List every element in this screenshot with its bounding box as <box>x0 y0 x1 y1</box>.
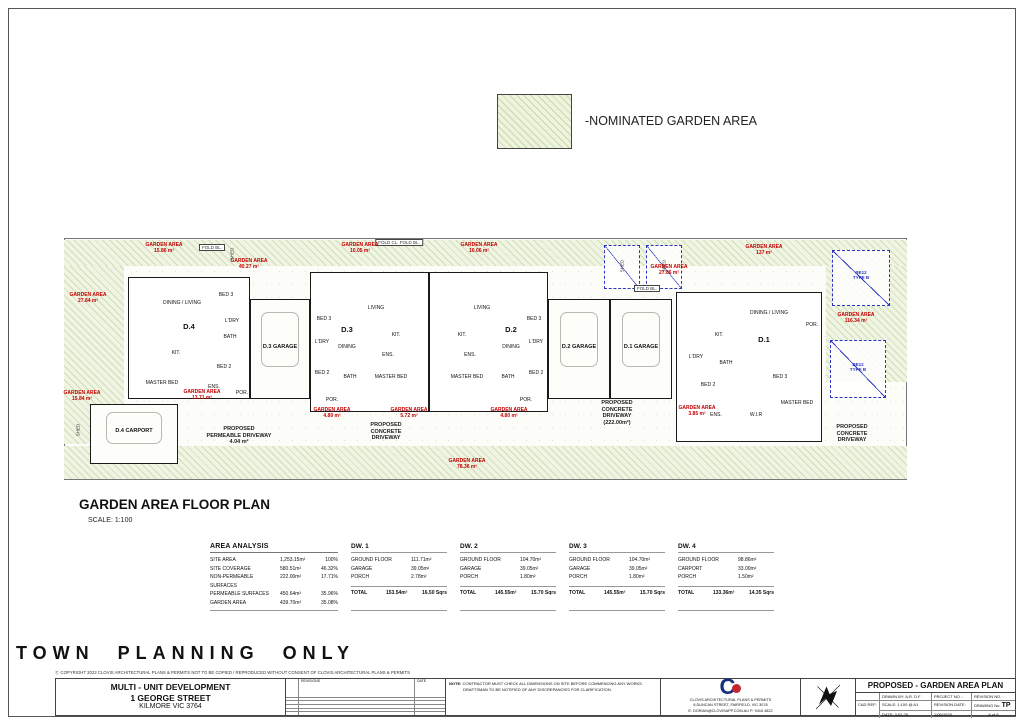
plan-label-drv: PROPOSED PERMEABLE DRIVEWAY 4.04 m² <box>207 426 272 446</box>
dwelling-row: CARPORT33.00m² <box>678 565 774 574</box>
plan-label-gar: D.3 GARAGE <box>263 344 297 351</box>
field-drawing-no: DRAWING No: TP <box>972 701 1015 711</box>
plan-label-room: MASTER BED <box>781 400 814 406</box>
plan-label-room: MASTER BED <box>451 374 484 380</box>
dwelling-column: DW. 4GROUND FLOOR98.86m²CARPORT33.00m²PO… <box>678 543 774 611</box>
dwelling-row: PORCH2.78m² <box>351 573 447 582</box>
revision-cell <box>286 701 299 704</box>
plan-label-room: BED 3 <box>317 316 331 322</box>
project-line-2: 1 GEORGE STREET <box>56 693 285 704</box>
revision-cell <box>286 712 299 715</box>
plan-label-red: GARDEN AREA 27.84 m² <box>69 292 106 304</box>
plan-label-red: GARDEN AREA 78.36 m² <box>448 458 485 470</box>
revision-cell <box>415 698 445 701</box>
revisions-empty-rows <box>286 698 445 716</box>
dwelling-row: GARAGE39.05m² <box>569 565 665 574</box>
revision-cell <box>286 709 299 712</box>
revision-cell <box>286 698 299 701</box>
north-arrow-block <box>801 679 856 715</box>
revision-cell <box>415 709 445 712</box>
plan-label-red: GARDEN AREA 4.80 m² <box>490 407 527 419</box>
revision-cell <box>415 712 445 715</box>
dwelling-total-row: TOTAL145.55m²15.70 Sqrs <box>569 586 665 596</box>
drawing-title-block: PROPOSED - GARDEN AREA PLAN DRAWN BY: A.… <box>856 679 1015 715</box>
plan-label-room: KIT. <box>715 332 724 338</box>
plan-label-room: ENS. <box>382 352 394 358</box>
plan-label-room: L'DRY <box>315 339 329 345</box>
plan-label-room: ENS. <box>464 352 476 358</box>
plan-label-uid: D.1 <box>758 335 770 344</box>
plan-label-fold: FOLD CL. FOLD BL. <box>375 239 423 246</box>
plan-label-room: L'DRY <box>689 354 703 360</box>
title-bar: MULTI - UNIT DEVELOPMENT 1 GEORGE STREET… <box>55 678 1016 716</box>
revision-row <box>286 712 445 715</box>
plan-label-red: GARDEN AREA 10.05 m² <box>341 242 378 254</box>
revision-cell <box>299 709 415 712</box>
plan-label-room: MASTER BED <box>146 380 179 386</box>
plan-label-room: LIVING <box>368 305 384 311</box>
note-label: NOTE: <box>449 681 461 686</box>
revision-cell <box>415 701 445 704</box>
plan-label-room: BED 2 <box>217 364 231 370</box>
plan-label-gar: D.4 CARPORT <box>115 428 152 435</box>
dwelling-row: PORCH1.50m² <box>678 573 774 582</box>
garden-area-legend-label: -NOMINATED GARDEN AREA <box>585 114 757 128</box>
dwelling-row: GROUND FLOOR98.86m² <box>678 556 774 565</box>
plan-label-uid: D.3 <box>341 325 353 334</box>
plan-label-room: W.I.R <box>750 412 762 418</box>
plan-label-uid: D.2 <box>505 325 517 334</box>
project-line-1: MULTI - UNIT DEVELOPMENT <box>56 682 285 693</box>
revision-cell <box>299 705 415 708</box>
plan-label-room: MASTER BED <box>375 374 408 380</box>
plan-label-room: ENS. <box>710 412 722 418</box>
plan-label-red: GARDEN AREA 27.86 m² <box>650 264 687 276</box>
plan-label-room: BATH <box>344 374 357 380</box>
field-date: DATE: 3.02.25 <box>880 711 932 718</box>
plan-label-fold: FOLD BL. <box>199 244 225 251</box>
note-block: NOTE: CONTRACTOR MUST CHECK ALL DIMENSIO… <box>446 679 661 715</box>
plan-heading: GARDEN AREA FLOOR PLAN <box>79 497 270 512</box>
dwelling-header: DW. 3 <box>569 543 665 553</box>
dwelling-header: DW. 1 <box>351 543 447 553</box>
field-revision-date-value: 1/06/2025 <box>932 711 972 718</box>
field-drawn-by: DRAWN BY: A.R. D.F <box>880 693 932 701</box>
plan-label-room: POR. <box>520 397 532 403</box>
company-contact: E: DORIAN@CLOVISAPP.COM.AU P: 9416 4822 <box>661 709 800 714</box>
drawing-sheet: -NOMINATED GARDEN AREA FOLD BL.FOLD CL. … <box>0 0 1024 723</box>
plan-label-vert: SHED <box>75 424 80 437</box>
dwelling-column: DW. 1GROUND FLOOR111.71m²GARAGE39.05m²PO… <box>351 543 447 611</box>
project-block: MULTI - UNIT DEVELOPMENT 1 GEORGE STREET… <box>56 679 286 715</box>
plan-label-red: GARDEN AREA 5.72 m² <box>390 407 427 419</box>
plan-label-room: KIT. <box>392 332 401 338</box>
plan-label-room: DINING <box>338 344 356 350</box>
plan-label-room: BED 3 <box>527 316 541 322</box>
note-line-1: CONTRACTOR MUST CHECK ALL DIMENSIONS ON … <box>463 681 643 686</box>
revision-cell <box>415 705 445 708</box>
field-sheet-number: 6 of 9 <box>972 711 1015 718</box>
plan-label-room: L'DRY <box>225 318 239 324</box>
plan-label-room: DINING / LIVING <box>163 300 201 306</box>
plan-label-gar: D.1 GARAGE <box>624 344 658 351</box>
clovis-logo-icon: C <box>716 680 746 698</box>
plan-label-blue: BE12 TYPE B <box>850 362 866 373</box>
revisions-header-spacer <box>286 679 299 697</box>
plan-label-room: KIT. <box>458 332 467 338</box>
plan-label-room: DINING <box>502 344 520 350</box>
plan-label-red: GARDEN AREA 13.71 m² <box>183 389 220 401</box>
dwelling-row: GROUND FLOOR104.70m² <box>569 556 665 565</box>
plan-label-red: GARDEN AREA 137 m² <box>745 244 782 256</box>
revisions-header: REVISIONS <box>299 679 415 697</box>
north-arrow-icon <box>813 682 843 712</box>
plan-label-room: LIVING <box>474 305 490 311</box>
analysis-row: GARDEN AREA439.70m²35.08% <box>210 599 338 608</box>
plan-label-red: GARDEN AREA 4.80 m² <box>313 407 350 419</box>
field-revision-no: REVISION NO. : <box>972 693 1015 701</box>
analysis-row: NON-PERMEABLE SURFACES222.00m²17.71% <box>210 573 338 590</box>
dwelling-row: PORCH1.80m² <box>569 573 665 582</box>
plan-label-room: ENS. <box>208 384 220 390</box>
plan-label-red: GARDEN AREA 116.34 m² <box>837 312 874 324</box>
plan-label-room: KIT. <box>172 350 181 356</box>
plan-label-room: BATH <box>502 374 515 380</box>
field-project-no: PROJECT NO. : <box>932 693 972 701</box>
plan-label-red: GARDEN AREA 40.27 m² <box>230 258 267 270</box>
revision-cell <box>286 705 299 708</box>
plan-label-room: POR. <box>806 322 818 328</box>
dwelling-header: DW. 2 <box>460 543 556 553</box>
plan-label-vert: SHED <box>661 260 666 273</box>
revision-cell <box>299 712 415 715</box>
analysis-row: PERMEABLE SURFACES450.64m²35.96% <box>210 590 338 599</box>
field-revision-date-label: REVISION DATE: <box>932 701 972 711</box>
company-block: C CLOVIS ARCHITECTURAL PLANS & PERMITS 8… <box>661 679 801 715</box>
plan-label-room: BED 3 <box>773 374 787 380</box>
analysis-row: SITE COVERAGE580.51m²46.32% <box>210 565 338 574</box>
area-analysis-title: AREA ANALYSIS <box>210 543 338 553</box>
plan-label-vert: SHED <box>229 248 234 261</box>
revision-cell <box>299 698 415 701</box>
drawing-title: PROPOSED - GARDEN AREA PLAN <box>856 679 1015 693</box>
plan-label-drv: PROPOSED CONCRETE DRIVEWAY <box>370 422 401 442</box>
plan-label-red: GARDEN AREA 15.86 m² <box>145 242 182 254</box>
dwelling-column: DW. 2GROUND FLOOR104.70m²GARAGE39.05m²PO… <box>460 543 556 611</box>
garden-area-legend-swatch <box>497 94 572 149</box>
plan-label-uid: D.4 <box>183 322 195 331</box>
drawing-fields-grid: DRAWN BY: A.R. D.F PROJECT NO. : REVISIO… <box>856 693 1015 718</box>
revisions-header-row: REVISIONS DATE <box>286 679 445 698</box>
plan-label-drv: PROPOSED CONCRETE DRIVEWAY (222.00m²) <box>601 400 632 426</box>
area-analysis-table: AREA ANALYSIS SITE AREA1,253.15m²100%SIT… <box>210 543 776 611</box>
dwelling-row: GARAGE39.05m² <box>351 565 447 574</box>
field-cad-ref: CAD REF: <box>856 701 880 718</box>
analysis-row: SITE AREA1,253.15m²100% <box>210 556 338 565</box>
revisions-date-header: DATE <box>415 679 445 697</box>
plan-label-red: GARDEN AREA 10.06 m² <box>460 242 497 254</box>
area-analysis-rows: SITE AREA1,253.15m²100%SITE COVERAGE580.… <box>210 556 338 607</box>
copyright-line: Ⓒ COPYRIGHT 2022 CLOVIS ARCHITECTURAL PL… <box>55 670 410 676</box>
plan-label-room: POR. <box>326 397 338 403</box>
plan-label-room: BATH <box>720 360 733 366</box>
drawing-no-label: DRAWING No: <box>974 703 1001 708</box>
plan-label-gar: D.2 GARAGE <box>562 344 596 351</box>
field-blank <box>856 693 880 701</box>
dwelling-total-row: TOTAL153.54m²16.50 Sqrs <box>351 586 447 596</box>
revision-cell <box>299 701 415 704</box>
clovis-logo-dot <box>732 684 741 693</box>
note-line-2: DRAFTSMAN TO BE NOTIFIED OF ANY DISCREPA… <box>463 687 612 692</box>
dwelling-row: GARAGE39.05m² <box>460 565 556 574</box>
dwelling-total-row: TOTAL145.55m²15.70 Sqrs <box>460 586 556 596</box>
revisions-table: REVISIONS DATE <box>286 679 446 715</box>
field-scale: SCALE: 1:100 @ A1 <box>880 701 932 711</box>
drawing-no-value: TP <box>1002 702 1011 709</box>
dwelling-row: PORCH1.80m² <box>460 573 556 582</box>
plan-label-red: GARDEN AREA 15.84 m² <box>63 390 100 402</box>
dwelling-column: DW. 3GROUND FLOOR104.70m²GARAGE39.05m²PO… <box>569 543 665 611</box>
plan-label-room: BED 2 <box>701 382 715 388</box>
dwelling-columns: DW. 1GROUND FLOOR111.71m²GARAGE39.05m²PO… <box>351 543 774 611</box>
plan-scale-note: SCALE: 1:100 <box>88 517 132 524</box>
dwelling-row: GROUND FLOOR111.71m² <box>351 556 447 565</box>
plan-label-room: BATH <box>224 334 237 340</box>
plan-label-room: L'DRY <box>529 339 543 345</box>
plan-label-room: BED 3 <box>219 292 233 298</box>
area-analysis-column: AREA ANALYSIS SITE AREA1,253.15m²100%SIT… <box>210 543 338 611</box>
plan-label-room: POR. <box>236 390 248 396</box>
plan-label-blue: BE12 TYPE B <box>853 270 869 281</box>
site-plan-canvas: FOLD BL.FOLD CL. FOLD BL.FOLD BL.GARDEN … <box>64 232 910 500</box>
dwelling-total-row: TOTAL133.36m²14.35 Sqrs <box>678 586 774 596</box>
project-line-3: KILMORE VIC 3764 <box>56 703 285 712</box>
plan-label-drv: PROPOSED CONCRETE DRIVEWAY <box>836 424 867 444</box>
dwelling-header: DW. 4 <box>678 543 774 553</box>
plan-label-fold: FOLD BL. <box>634 285 660 292</box>
plan-label-room: DINING / LIVING <box>750 310 788 316</box>
plan-label-vert: SHED <box>619 260 624 273</box>
town-planning-stamp: TOWN PLANNING ONLY <box>16 643 355 664</box>
dwelling-row: GROUND FLOOR104.70m² <box>460 556 556 565</box>
plan-label-room: BED 2 <box>529 370 543 376</box>
plan-label-room: BED 2 <box>315 370 329 376</box>
